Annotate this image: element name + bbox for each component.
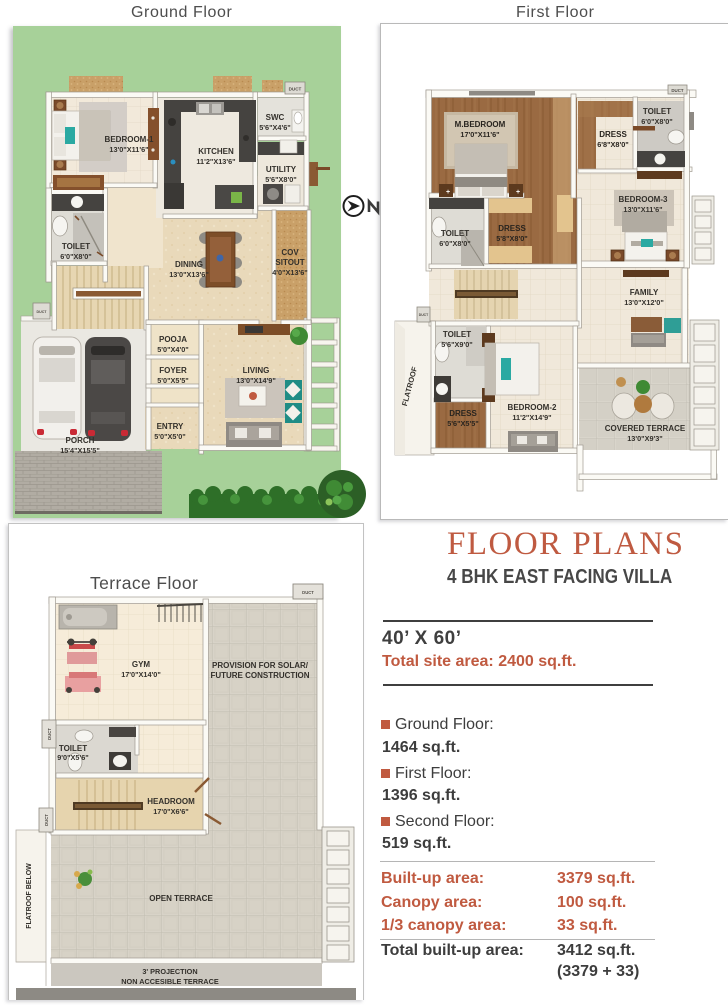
svg-text:DUCT: DUCT bbox=[289, 87, 302, 92]
svg-text:5'8"X8'0": 5'8"X8'0" bbox=[496, 234, 528, 243]
svg-text:13'0"X11'6": 13'0"X11'6" bbox=[109, 145, 148, 154]
svg-text:5'6"X5'5": 5'6"X5'5" bbox=[447, 419, 479, 428]
svg-text:Terrace Floor: Terrace Floor bbox=[90, 573, 198, 593]
svg-text:GYM: GYM bbox=[132, 524, 151, 526]
svg-text:13'0"X11'6": 13'0"X11'6" bbox=[623, 205, 662, 214]
svg-text:TOILET: TOILET bbox=[443, 330, 471, 339]
svg-text:POOJA: POOJA bbox=[159, 335, 187, 344]
svg-text:15'4"X15'5": 15'4"X15'5" bbox=[60, 446, 100, 455]
svg-text:GYM: GYM bbox=[132, 660, 151, 669]
svg-text:ENTRY: ENTRY bbox=[157, 422, 184, 431]
svg-text:HEADROOM: HEADROOM bbox=[147, 797, 195, 806]
svg-text:9'0"X5'6": 9'0"X5'6" bbox=[57, 753, 89, 762]
svg-text:13'0"X14'9": 13'0"X14'9" bbox=[236, 376, 276, 385]
svg-text:PORCH: PORCH bbox=[66, 436, 95, 445]
svg-text:17'0"X14'0": 17'0"X14'0" bbox=[121, 670, 161, 679]
svg-text:UTILITY: UTILITY bbox=[266, 165, 297, 174]
svg-text:M.BEDROOM: M.BEDROOM bbox=[455, 120, 506, 129]
svg-text:5'6"X8'0": 5'6"X8'0" bbox=[265, 175, 297, 184]
svg-text:BEDROOM-3: BEDROOM-3 bbox=[619, 195, 668, 204]
svg-text:DUCT: DUCT bbox=[419, 313, 429, 317]
svg-text:DRESS: DRESS bbox=[599, 130, 627, 139]
svg-text:DUCT: DUCT bbox=[47, 728, 52, 740]
svg-text:OPEN TERRACE: OPEN TERRACE bbox=[149, 894, 213, 903]
svg-text:PROVISION FOR SOLAR/: PROVISION FOR SOLAR/ bbox=[212, 661, 309, 670]
svg-text:LIVING: LIVING bbox=[243, 366, 270, 375]
svg-text:5'6"X4'6": 5'6"X4'6" bbox=[259, 123, 291, 132]
svg-text:DRESS: DRESS bbox=[449, 409, 477, 418]
svg-text:DUCT: DUCT bbox=[302, 590, 314, 595]
svg-text:6'0"X8'0": 6'0"X8'0" bbox=[641, 117, 673, 126]
svg-text:DINING: DINING bbox=[175, 260, 203, 269]
svg-text:6'0"X8'0": 6'0"X8'0" bbox=[439, 239, 471, 248]
svg-text:DUCT: DUCT bbox=[44, 814, 49, 826]
svg-text:COV: COV bbox=[281, 248, 299, 257]
svg-text:+: + bbox=[446, 189, 450, 196]
svg-text:COVERED TERRACE: COVERED TERRACE bbox=[605, 424, 686, 433]
svg-text:FUTURE CONSTRUCTION: FUTURE CONSTRUCTION bbox=[210, 671, 309, 680]
svg-text:6'0"X8'0": 6'0"X8'0" bbox=[60, 252, 92, 261]
svg-text:11'2"X14'9": 11'2"X14'9" bbox=[512, 413, 551, 422]
svg-text:TOILET: TOILET bbox=[62, 242, 90, 251]
svg-text:FAMILY: FAMILY bbox=[630, 288, 659, 297]
svg-text:BEDROOM-1: BEDROOM-1 bbox=[105, 135, 154, 144]
svg-text:5'6"X9'0": 5'6"X9'0" bbox=[441, 340, 473, 349]
svg-text:FLATROOF BELOW: FLATROOF BELOW bbox=[26, 863, 33, 929]
svg-text:KITCHEN: KITCHEN bbox=[198, 147, 234, 156]
svg-text:+: + bbox=[516, 189, 520, 196]
svg-text:DUCT: DUCT bbox=[37, 310, 48, 314]
svg-text:SITOUT: SITOUT bbox=[275, 258, 304, 267]
svg-text:5'0"X4'0": 5'0"X4'0" bbox=[157, 345, 189, 354]
svg-text:BEDROOM-2: BEDROOM-2 bbox=[508, 403, 557, 412]
svg-text:TOILET: TOILET bbox=[441, 229, 469, 238]
svg-text:3' PROJECTION: 3' PROJECTION bbox=[142, 967, 197, 976]
svg-text:FOYER: FOYER bbox=[159, 366, 187, 375]
svg-text:NON ACCESIBLE TERRACE: NON ACCESIBLE TERRACE bbox=[121, 977, 219, 986]
svg-text:SWC: SWC bbox=[266, 113, 285, 122]
svg-text:5'0"X5'5": 5'0"X5'5" bbox=[157, 376, 189, 385]
svg-text:TOILET: TOILET bbox=[643, 107, 671, 116]
svg-text:13'0"X13'6": 13'0"X13'6" bbox=[169, 270, 209, 279]
svg-text:17'0"X6'6": 17'0"X6'6" bbox=[153, 807, 189, 816]
svg-text:4'0"X13'6": 4'0"X13'6" bbox=[272, 268, 308, 277]
svg-text:13'0"X9'3": 13'0"X9'3" bbox=[627, 434, 663, 443]
svg-text:TOILET: TOILET bbox=[59, 744, 87, 753]
svg-text:DUCT: DUCT bbox=[671, 88, 684, 93]
svg-text:DRESS: DRESS bbox=[498, 224, 526, 233]
svg-text:17'0"X11'6": 17'0"X11'6" bbox=[460, 130, 499, 139]
svg-text:11'2"X13'6": 11'2"X13'6" bbox=[196, 157, 235, 166]
svg-text:6'8"X8'0": 6'8"X8'0" bbox=[597, 140, 629, 149]
svg-text:5'0"X5'0": 5'0"X5'0" bbox=[154, 432, 186, 441]
svg-text:13'0"X12'0": 13'0"X12'0" bbox=[624, 298, 664, 307]
